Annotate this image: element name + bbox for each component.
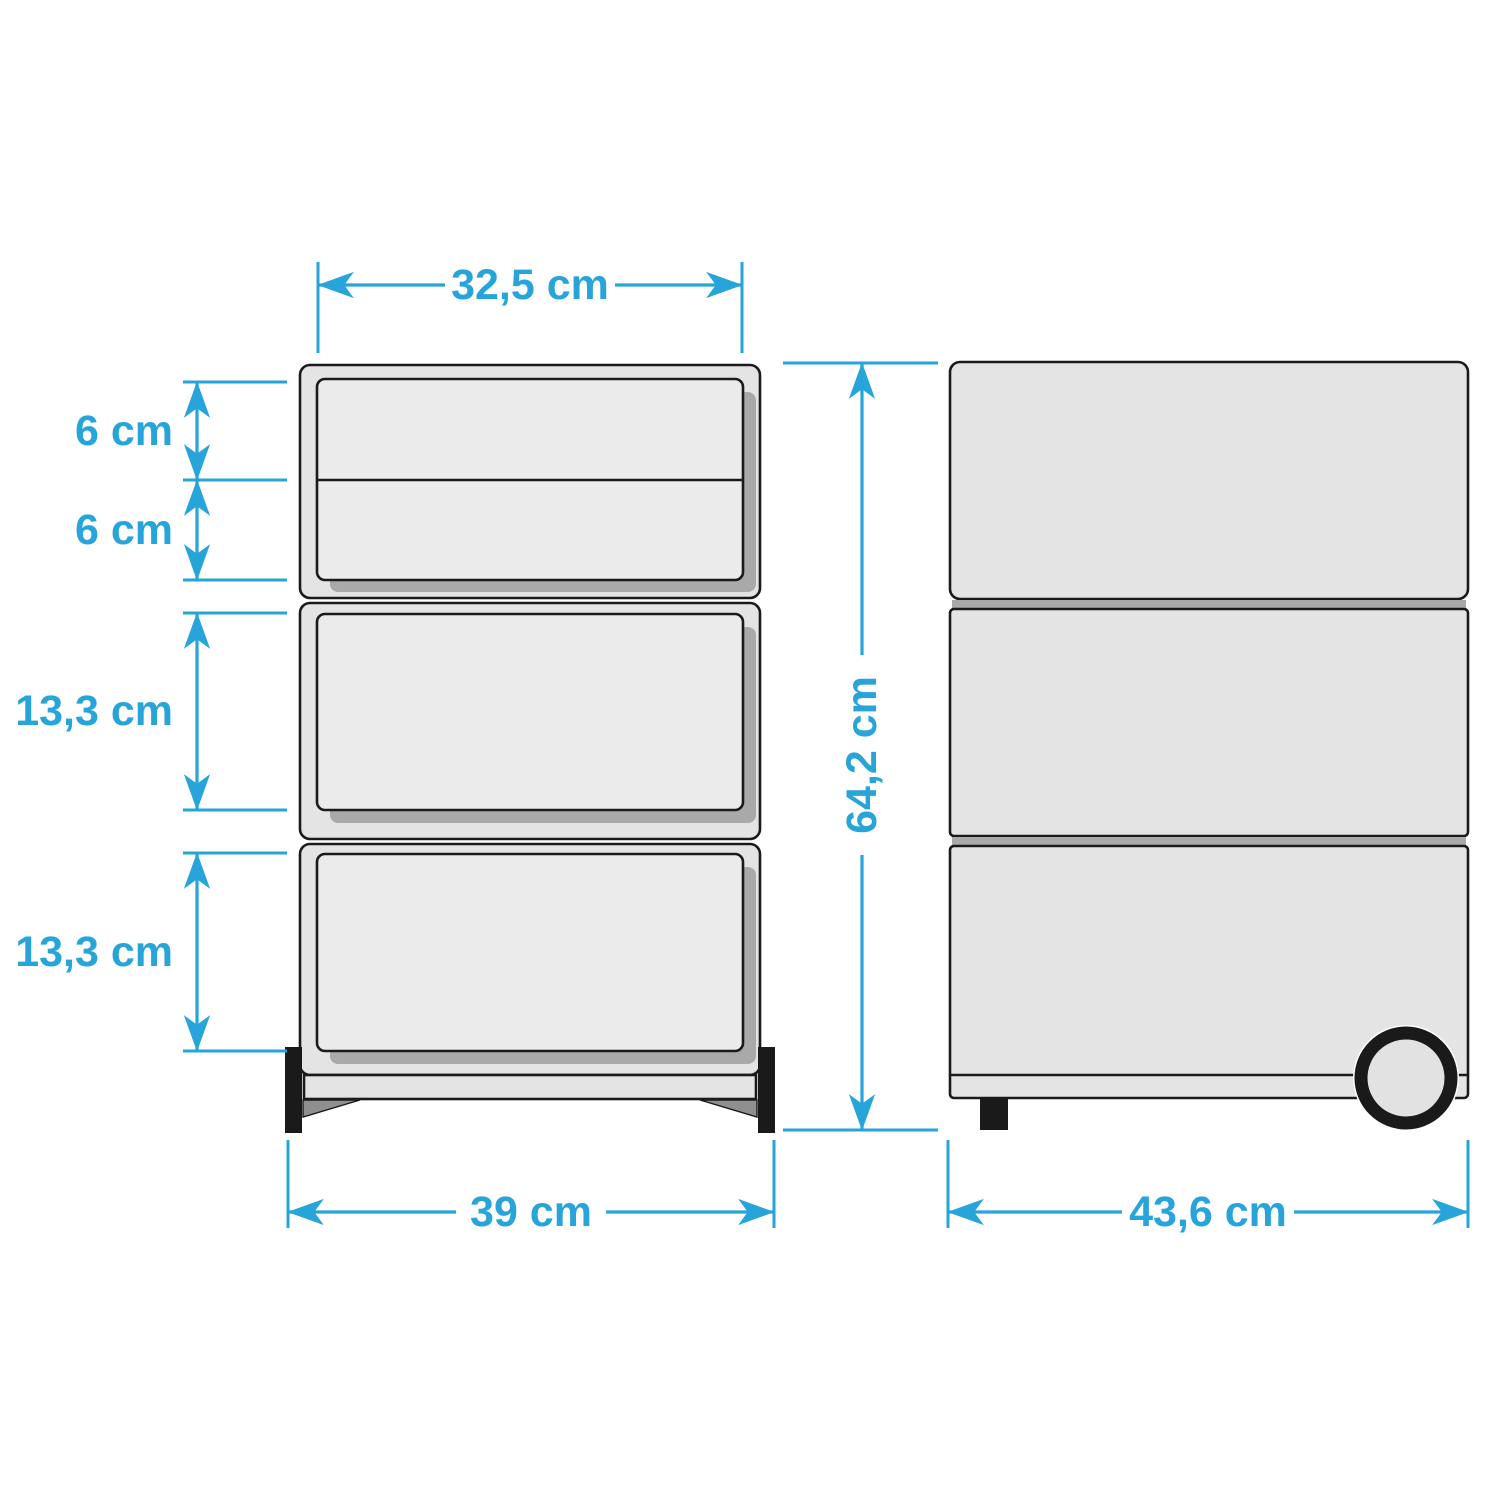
dimension-label-small-drawer-2: 6 cm [75,506,173,554]
front-caster-left [285,1047,302,1133]
front-module-bottom [300,844,760,1075]
side-panel-middle [950,609,1468,836]
front-large-drawer-1-face [317,614,743,810]
front-caster-right [758,1047,775,1133]
front-base-wedge-right [700,1100,757,1117]
dimension-depth: 43,6 cm [948,1140,1468,1236]
dimension-label-large-drawer-2: 13,3 cm [15,928,173,976]
side-separator-band-2 [952,837,1466,846]
dimension-label-large-drawer-1: 13,3 cm [15,687,173,735]
dimension-label-base-width: 39 cm [470,1188,592,1236]
dimension-total-height: 64,2 cm [783,363,938,1130]
side-foot-front [980,1098,1008,1130]
dimension-label-depth: 43,6 cm [1129,1188,1287,1236]
dimension-left-stack: 6 cm 6 cm 13,3 cm 13,3 cm [15,382,287,1051]
dimension-base-width: 39 cm [288,1140,774,1236]
side-view [950,362,1468,1131]
front-plinth [304,1075,756,1099]
front-module-top [300,365,760,598]
dimension-label-total-height: 64,2 cm [838,676,886,834]
dimension-diagram: 32,5 cm 6 cm 6 cm 13,3 cm 13,3 cm [0,0,1500,1500]
diagram-stage: 32,5 cm 6 cm 6 cm 13,3 cm 13,3 cm [0,0,1500,1500]
side-wheel [1361,1033,1451,1123]
dimension-top-inner-width: 32,5 cm [318,261,742,353]
side-separator-band-1 [952,600,1466,609]
dimension-label-small-drawer-1: 6 cm [75,407,173,455]
side-panel-top [950,362,1468,599]
front-view [285,365,775,1133]
front-base-wedge-left [303,1100,360,1117]
dimension-label-top-inner-width: 32,5 cm [451,261,609,309]
front-large-drawer-2-face [317,854,743,1051]
front-module-middle [300,603,760,839]
